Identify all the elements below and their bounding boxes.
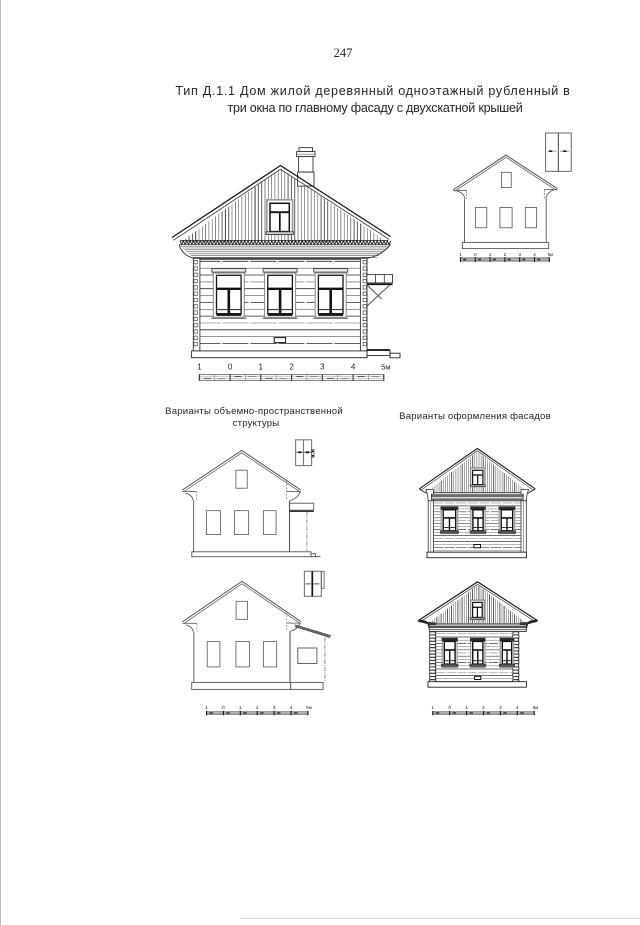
svg-text:1: 1 [465,705,468,711]
svg-text:3: 3 [320,363,325,372]
svg-text:4: 4 [290,705,293,711]
svg-text:1: 1 [205,705,208,711]
svg-text:5м: 5м [306,705,312,710]
svg-text:1: 1 [259,363,264,372]
svg-text:2: 2 [256,705,259,711]
svg-text:0: 0 [228,363,233,372]
svg-text:0: 0 [474,252,477,258]
svg-text:4: 4 [351,363,356,372]
svg-text:0: 0 [448,705,451,711]
svg-text:1: 1 [239,705,242,711]
svg-text:1: 1 [431,705,434,711]
svg-text:4: 4 [533,252,536,258]
svg-text:3: 3 [518,252,521,258]
svg-text:5м: 5м [533,705,539,710]
svg-text:5м: 5м [548,252,553,257]
svg-text:3: 3 [273,705,276,711]
svg-text:5м: 5м [381,363,390,372]
svg-text:1: 1 [489,252,492,258]
svg-text:2: 2 [504,252,507,258]
svg-text:2: 2 [482,705,485,711]
svg-text:2: 2 [289,363,294,372]
svg-text:4: 4 [516,705,519,711]
svg-text:0: 0 [222,705,225,711]
svg-text:1: 1 [197,363,202,372]
svg-text:3: 3 [499,705,502,711]
svg-text:1: 1 [459,252,462,258]
